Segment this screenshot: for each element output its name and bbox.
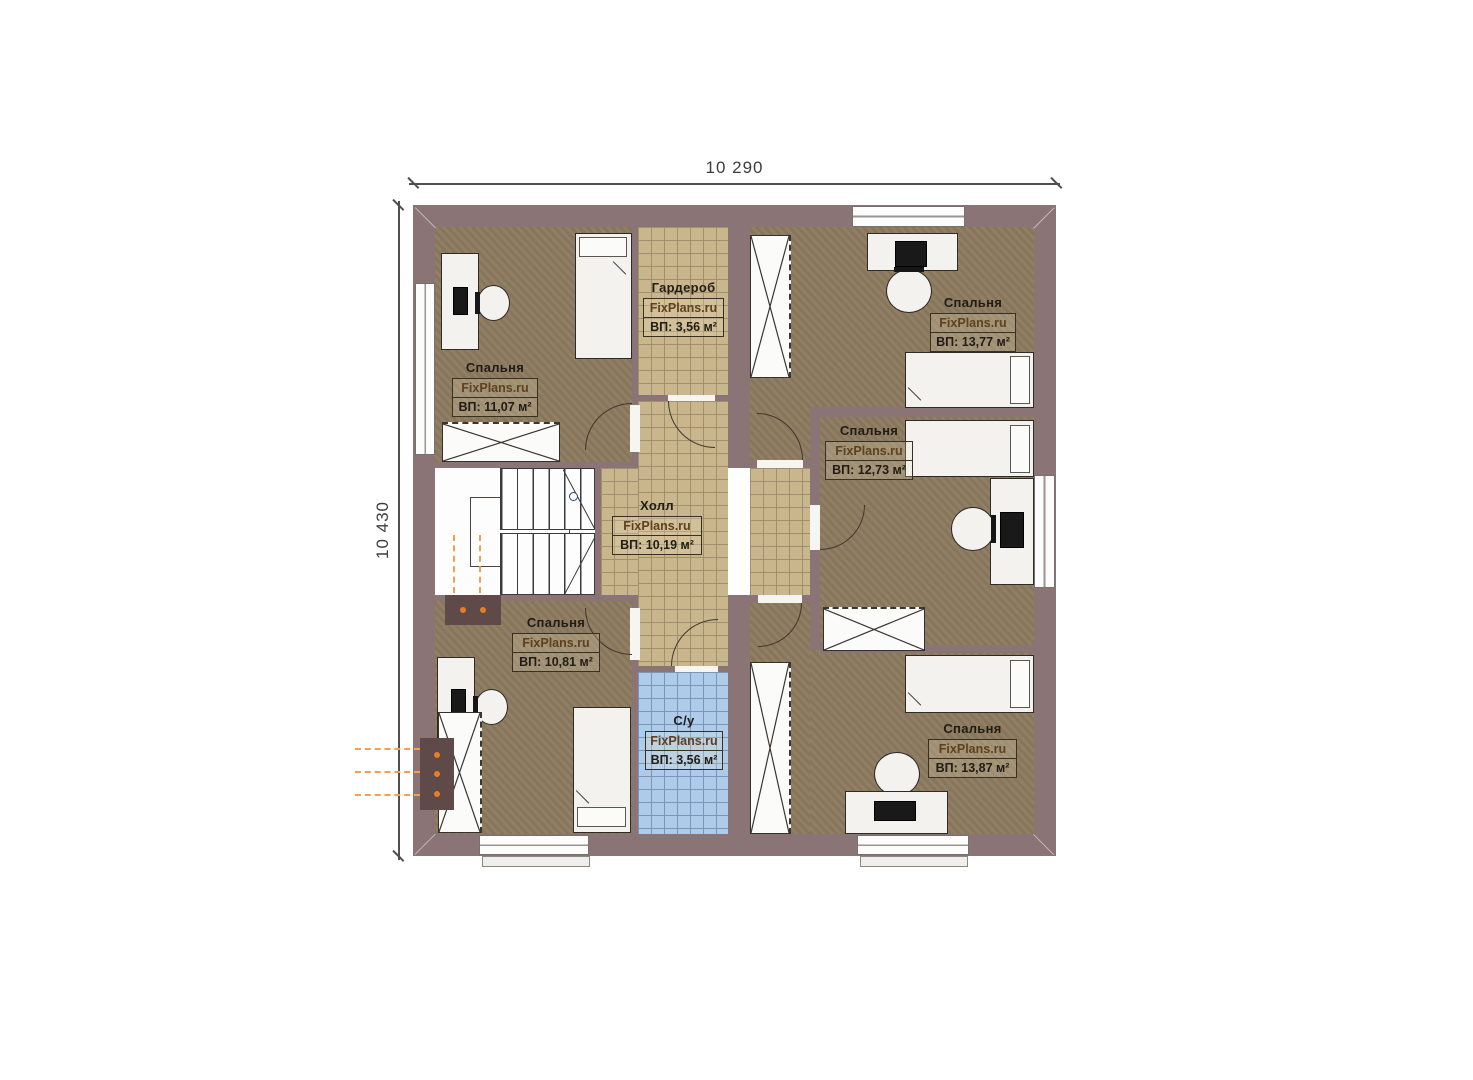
room-name: Спальня [512,615,600,630]
radiator-coil-icon [480,595,486,625]
room-label-bedroom-bottom-right: Спальня FixPlans.ru ВП: 13,87 м² [928,721,1017,778]
wall-interior [435,462,638,468]
room-area-text: ВП: 13,77 м² [931,333,1015,351]
room-area-text: ВП: 3,56 м² [646,751,722,769]
room-area-text: ВП: 10,81 м² [513,653,599,671]
window [852,206,965,227]
wall-interior [638,395,668,401]
chair-back-icon [894,267,924,272]
room-name: Гардероб [643,280,724,295]
room-info-box: FixPlans.ru ВП: 11,07 м² [452,378,538,417]
window [479,835,589,855]
floor-hall-corridor [750,468,810,595]
monitor-icon [895,241,927,267]
room-area-text: ВП: 13,87 м² [929,759,1016,777]
monitor-icon [874,801,916,821]
wall-interior [802,595,820,603]
room-label-bedroom-mid-right: Спальня FixPlans.ru ВП: 12,73 м² [825,423,913,480]
watermark-text: FixPlans.ru [513,634,599,653]
window [1034,475,1055,588]
dimension-width-label: 10 290 [413,158,1056,178]
heating-pipe-line [453,535,455,593]
room-area-text: ВП: 3,56 м² [644,318,723,336]
pillow [1010,356,1030,404]
pillow [577,807,626,827]
door-opening [675,666,718,672]
monitor-icon [1000,512,1024,548]
office-chair-icon [951,507,995,551]
office-chair-icon [477,285,510,321]
heating-pipe-line [355,748,420,750]
window-sill [482,856,590,867]
radiator-coil-icon [420,752,454,758]
watermark-text: FixPlans.ru [644,299,723,318]
heating-pipe-line [479,535,481,593]
room-label-bedroom-top-right: Спальня FixPlans.ru ВП: 13,77 м² [930,295,1016,352]
wall-interior [715,395,728,401]
wall-interior [638,666,675,672]
door-opening [810,505,820,550]
room-name: С/у [645,713,723,728]
wall-interior [750,595,758,603]
watermark-text: FixPlans.ru [929,740,1016,759]
office-chair-icon [886,269,932,313]
room-label-hall: Холл FixPlans.ru ВП: 10,19 м² [612,498,702,555]
dimension-height-label: 10 430 [373,501,393,559]
floor-plan-canvas: 10 290 10 430 [0,0,1473,1080]
room-label-wardrobe: Гардероб FixPlans.ru ВП: 3,56 м² [643,280,724,337]
office-chair-icon [874,752,920,796]
room-name: Спальня [825,423,913,438]
radiator [445,595,501,625]
watermark-text: FixPlans.ru [931,314,1015,333]
room-name: Холл [612,498,702,513]
door-opening [758,595,802,603]
room-info-box: FixPlans.ru ВП: 10,19 м² [612,516,702,555]
heating-pipe-line [355,771,420,773]
wardrobe-cabinet [442,422,560,462]
radiator-coil-icon [420,771,454,777]
watermark-text: FixPlans.ru [453,379,537,398]
room-info-box: FixPlans.ru ВП: 10,81 м² [512,633,600,672]
dimension-height-line [398,201,400,860]
wall-interior [750,460,757,468]
wardrobe-cabinet [750,235,791,378]
wall-interior [820,407,1034,417]
room-info-box: FixPlans.ru ВП: 13,87 м² [928,739,1017,778]
room-label-bathroom: С/у FixPlans.ru ВП: 3,56 м² [645,713,723,770]
room-area-text: ВП: 11,07 м² [453,398,537,416]
stair-flight-upper [500,468,595,530]
wall-interior-bearing [728,227,750,468]
window-sill [860,856,968,867]
radiator [420,738,454,810]
dimension-width-line [409,183,1060,185]
wall-interior [718,666,728,672]
room-name: Спальня [928,721,1017,736]
door-opening [757,460,803,468]
room-info-box: FixPlans.ru ВП: 12,73 м² [825,441,913,480]
pillow [1010,660,1030,708]
room-area-text: ВП: 12,73 м² [826,461,912,479]
room-info-box: FixPlans.ru ВП: 3,56 м² [645,731,723,770]
wardrobe-cabinet [823,607,925,651]
room-area-text: ВП: 10,19 м² [613,536,701,554]
wall-interior [595,467,601,600]
heating-pipe-line [355,794,420,796]
pillow [579,237,627,257]
room-label-bedroom-bottom-left: Спальня FixPlans.ru ВП: 10,81 м² [512,615,600,672]
floor-plan: Спальня FixPlans.ru ВП: 11,07 м² Гардеро… [413,205,1056,856]
watermark-text: FixPlans.ru [826,442,912,461]
stair-direction-marker [569,492,578,501]
window [857,835,969,855]
monitor-icon [453,287,468,315]
room-label-bedroom-top-left: Спальня FixPlans.ru ВП: 11,07 м² [452,360,538,417]
radiator-coil-icon [460,595,466,625]
chair-back-icon [991,515,996,543]
chair-back-icon [475,292,480,314]
wall-interior-bearing [728,595,750,834]
room-name: Спальня [930,295,1016,310]
wall-interior [803,460,820,468]
room-info-box: FixPlans.ru ВП: 3,56 м² [643,298,724,337]
window [415,283,435,455]
wardrobe-cabinet [750,662,791,834]
watermark-text: FixPlans.ru [613,517,701,536]
room-name: Спальня [452,360,538,375]
watermark-text: FixPlans.ru [646,732,722,751]
room-info-box: FixPlans.ru ВП: 13,77 м² [930,313,1016,352]
radiator-coil-icon [420,791,454,797]
pillow [1010,425,1030,473]
